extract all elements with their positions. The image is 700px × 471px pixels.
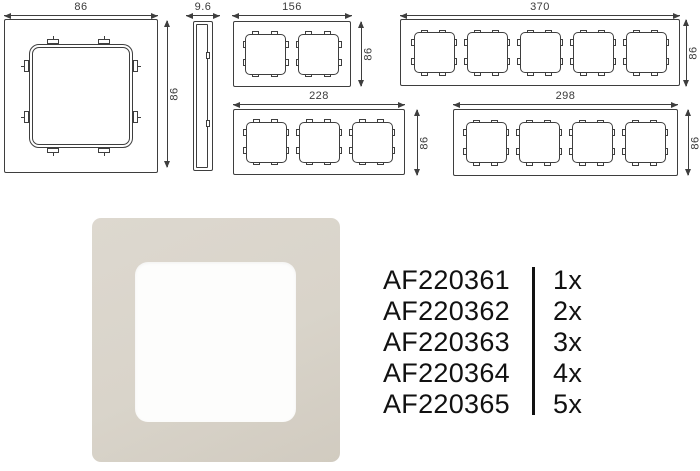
mount-tab bbox=[306, 119, 313, 123]
mount-tab bbox=[569, 129, 573, 136]
mount-tab bbox=[622, 129, 626, 136]
dim-label: 156 bbox=[232, 2, 352, 13]
mount-tab bbox=[544, 120, 551, 124]
part-row: AF220364 4x bbox=[383, 358, 643, 389]
dim-line bbox=[186, 15, 220, 16]
mount-tab bbox=[570, 39, 574, 46]
mount-tab bbox=[252, 31, 259, 35]
mount-tab bbox=[349, 147, 353, 154]
mount-tab bbox=[579, 120, 586, 124]
dim-line bbox=[232, 15, 352, 16]
mount-tab bbox=[612, 148, 616, 155]
frame-opening bbox=[520, 32, 561, 73]
dim-4gang-width: 298 bbox=[453, 91, 678, 105]
mount-tab bbox=[651, 30, 658, 34]
frame-opening bbox=[573, 32, 614, 73]
frame-opening bbox=[29, 44, 133, 148]
mount-tab bbox=[324, 162, 331, 166]
mount-tab bbox=[47, 148, 59, 153]
mount-tab bbox=[666, 58, 670, 65]
mount-tab bbox=[285, 41, 289, 48]
single-frame-front-drawing bbox=[4, 19, 158, 173]
mount-tab bbox=[580, 72, 587, 76]
mount-tab bbox=[506, 148, 510, 155]
mount-tab bbox=[650, 162, 657, 166]
mount-tab bbox=[324, 74, 331, 78]
frame-3gang-drawing bbox=[233, 109, 405, 175]
mount-tab bbox=[633, 30, 640, 34]
mount-tab bbox=[463, 148, 467, 155]
dim-5gang-width: 370 bbox=[400, 2, 680, 16]
dim-line bbox=[400, 15, 680, 16]
mount-tab bbox=[623, 58, 627, 65]
frame-side-profile-drawing bbox=[193, 21, 213, 171]
part-quantity: 2x bbox=[553, 296, 582, 327]
frame-opening bbox=[466, 122, 507, 163]
part-sku: AF220363 bbox=[383, 327, 553, 358]
mount-tab bbox=[252, 74, 259, 78]
dim-single-height: 86 bbox=[167, 21, 168, 167]
part-row: AF220362 2x bbox=[383, 296, 643, 327]
mount-tab bbox=[47, 39, 59, 44]
clip-notch bbox=[206, 52, 210, 59]
dim-label: 9.6 bbox=[186, 2, 220, 13]
frame-opening bbox=[519, 122, 560, 163]
mount-tab bbox=[98, 39, 110, 44]
dim-line bbox=[4, 15, 158, 16]
mount-tab bbox=[650, 120, 657, 124]
mount-tab bbox=[421, 30, 428, 34]
mount-tab bbox=[598, 30, 605, 34]
mount-tab bbox=[633, 72, 640, 76]
dim-side-depth: 9.6 bbox=[186, 2, 220, 16]
part-sku: AF220365 bbox=[383, 389, 553, 420]
mount-tab bbox=[474, 30, 481, 34]
dim-label: 228 bbox=[233, 91, 405, 102]
mount-tab bbox=[492, 30, 499, 34]
mount-tab bbox=[359, 119, 366, 123]
mount-tab bbox=[560, 39, 564, 46]
mount-tab bbox=[506, 129, 510, 136]
mount-tab bbox=[613, 58, 617, 65]
mount-tab bbox=[665, 148, 669, 155]
dim-3gang-height: 86 bbox=[417, 110, 418, 175]
mount-tab bbox=[286, 147, 290, 154]
dim-label: 86 bbox=[689, 42, 700, 64]
mount-tab bbox=[507, 58, 511, 65]
mount-tab bbox=[338, 41, 342, 48]
mount-tab bbox=[253, 119, 260, 123]
mount-tab bbox=[24, 111, 29, 123]
mount-tab bbox=[253, 162, 260, 166]
list-divider bbox=[532, 267, 535, 415]
mount-tab bbox=[612, 129, 616, 136]
mount-tab bbox=[559, 129, 563, 136]
mount-tab bbox=[411, 39, 415, 46]
dim-label: 86 bbox=[691, 132, 700, 154]
mount-tab bbox=[464, 39, 468, 46]
mount-tab bbox=[339, 129, 343, 136]
frame-opening bbox=[245, 34, 286, 75]
mount-tab bbox=[507, 39, 511, 46]
frame-5gang-drawing bbox=[400, 19, 680, 86]
mount-tab bbox=[377, 162, 384, 166]
mount-tab bbox=[473, 162, 480, 166]
mount-tab bbox=[349, 129, 353, 136]
mount-tab bbox=[491, 120, 498, 124]
mount-tab bbox=[517, 39, 521, 46]
dim-label: 86 bbox=[4, 2, 158, 13]
mount-tab bbox=[597, 120, 604, 124]
part-quantity: 3x bbox=[553, 327, 582, 358]
frame-opening bbox=[414, 32, 455, 73]
frame-opening bbox=[352, 122, 393, 163]
mount-tab bbox=[285, 59, 289, 66]
frame-opening bbox=[572, 122, 613, 163]
mount-tab bbox=[598, 72, 605, 76]
clip-notch bbox=[206, 120, 210, 127]
mount-tab bbox=[632, 162, 639, 166]
mount-tab bbox=[544, 162, 551, 166]
mount-tab bbox=[527, 72, 534, 76]
dim-label: 370 bbox=[400, 2, 680, 13]
mount-tab bbox=[271, 74, 278, 78]
mount-tab bbox=[296, 147, 300, 154]
mount-tab bbox=[133, 60, 138, 72]
dim-5gang-height: 86 bbox=[686, 20, 687, 86]
mount-tab bbox=[324, 31, 331, 35]
mount-tab bbox=[24, 60, 29, 72]
part-quantity: 1x bbox=[553, 265, 582, 296]
part-sku: AF220364 bbox=[383, 358, 553, 389]
part-row: AF220365 5x bbox=[383, 389, 643, 420]
mount-tab bbox=[305, 31, 312, 35]
mount-tab bbox=[580, 30, 587, 34]
dim-line bbox=[453, 104, 678, 105]
dim-label: 86 bbox=[170, 83, 181, 105]
dim-label: 298 bbox=[453, 91, 678, 102]
mount-tab bbox=[98, 148, 110, 153]
mount-tab bbox=[392, 129, 396, 136]
mount-tab bbox=[623, 39, 627, 46]
mount-tab bbox=[613, 39, 617, 46]
mount-tab bbox=[324, 119, 331, 123]
mount-tab bbox=[271, 119, 278, 123]
mount-tab bbox=[296, 41, 300, 48]
mount-tab bbox=[243, 41, 247, 48]
frame-opening bbox=[299, 122, 340, 163]
dim-2gang-height: 86 bbox=[361, 22, 362, 86]
mount-tab bbox=[545, 72, 552, 76]
mount-tab bbox=[516, 129, 520, 136]
dim-single-width: 86 bbox=[4, 2, 158, 16]
frame-opening bbox=[246, 122, 287, 163]
mount-tab bbox=[271, 31, 278, 35]
mount-tab bbox=[473, 120, 480, 124]
mount-tab bbox=[517, 58, 521, 65]
mount-tab bbox=[569, 148, 573, 155]
frame-opening bbox=[626, 32, 667, 73]
mount-tab bbox=[392, 147, 396, 154]
frame-2gang-drawing bbox=[233, 21, 351, 87]
frame-opening bbox=[625, 122, 666, 163]
frame-opening bbox=[298, 34, 339, 75]
mount-tab bbox=[296, 129, 300, 136]
mount-tab bbox=[243, 129, 247, 136]
mount-tab bbox=[133, 111, 138, 123]
mount-tab bbox=[243, 147, 247, 154]
mount-tab bbox=[339, 147, 343, 154]
part-row: AF220361 1x bbox=[383, 265, 643, 296]
mount-tab bbox=[439, 72, 446, 76]
mount-tab bbox=[463, 129, 467, 136]
mount-tab bbox=[545, 30, 552, 34]
mount-tab bbox=[474, 72, 481, 76]
product-photo-single-frame bbox=[92, 218, 340, 462]
mount-tab bbox=[491, 162, 498, 166]
part-sku: AF220362 bbox=[383, 296, 553, 327]
mount-tab bbox=[579, 162, 586, 166]
mount-tab bbox=[306, 162, 313, 166]
mount-tab bbox=[377, 119, 384, 123]
mount-tab bbox=[516, 148, 520, 155]
mount-tab bbox=[492, 72, 499, 76]
mount-tab bbox=[286, 129, 290, 136]
part-quantity: 5x bbox=[553, 389, 582, 420]
mount-tab bbox=[622, 148, 626, 155]
dim-label: 86 bbox=[420, 132, 431, 154]
mount-tab bbox=[411, 58, 415, 65]
dim-3gang-width: 228 bbox=[233, 91, 405, 105]
product-datasheet: 86 9.6 156 370 228 298 86 86 86 86 86 bbox=[0, 0, 700, 471]
mount-tab bbox=[560, 58, 564, 65]
dim-4gang-height: 86 bbox=[688, 110, 689, 175]
mount-tab bbox=[464, 58, 468, 65]
mount-tab bbox=[526, 162, 533, 166]
product-photo-opening bbox=[135, 262, 296, 422]
mount-tab bbox=[454, 39, 458, 46]
part-quantity: 4x bbox=[553, 358, 582, 389]
mount-tab bbox=[597, 162, 604, 166]
part-number-list: AF220361 1x AF220362 2x AF220363 3x AF22… bbox=[383, 265, 643, 420]
mount-tab bbox=[527, 30, 534, 34]
mount-tab bbox=[271, 162, 278, 166]
mount-tab bbox=[651, 72, 658, 76]
mount-tab bbox=[559, 148, 563, 155]
dim-label: 86 bbox=[364, 43, 375, 65]
mount-tab bbox=[359, 162, 366, 166]
mount-tab bbox=[421, 72, 428, 76]
mount-tab bbox=[665, 129, 669, 136]
dim-line bbox=[233, 104, 405, 105]
mount-tab bbox=[243, 59, 247, 66]
part-sku: AF220361 bbox=[383, 265, 553, 296]
frame-4gang-drawing bbox=[453, 109, 678, 176]
mount-tab bbox=[296, 59, 300, 66]
part-row: AF220363 3x bbox=[383, 327, 643, 358]
mount-tab bbox=[666, 39, 670, 46]
mount-tab bbox=[439, 30, 446, 34]
dim-2gang-width: 156 bbox=[232, 2, 352, 16]
mount-tab bbox=[570, 58, 574, 65]
mount-tab bbox=[632, 120, 639, 124]
frame-opening bbox=[467, 32, 508, 73]
mount-tab bbox=[305, 74, 312, 78]
mount-tab bbox=[454, 58, 458, 65]
mount-tab bbox=[338, 59, 342, 66]
mount-tab bbox=[526, 120, 533, 124]
